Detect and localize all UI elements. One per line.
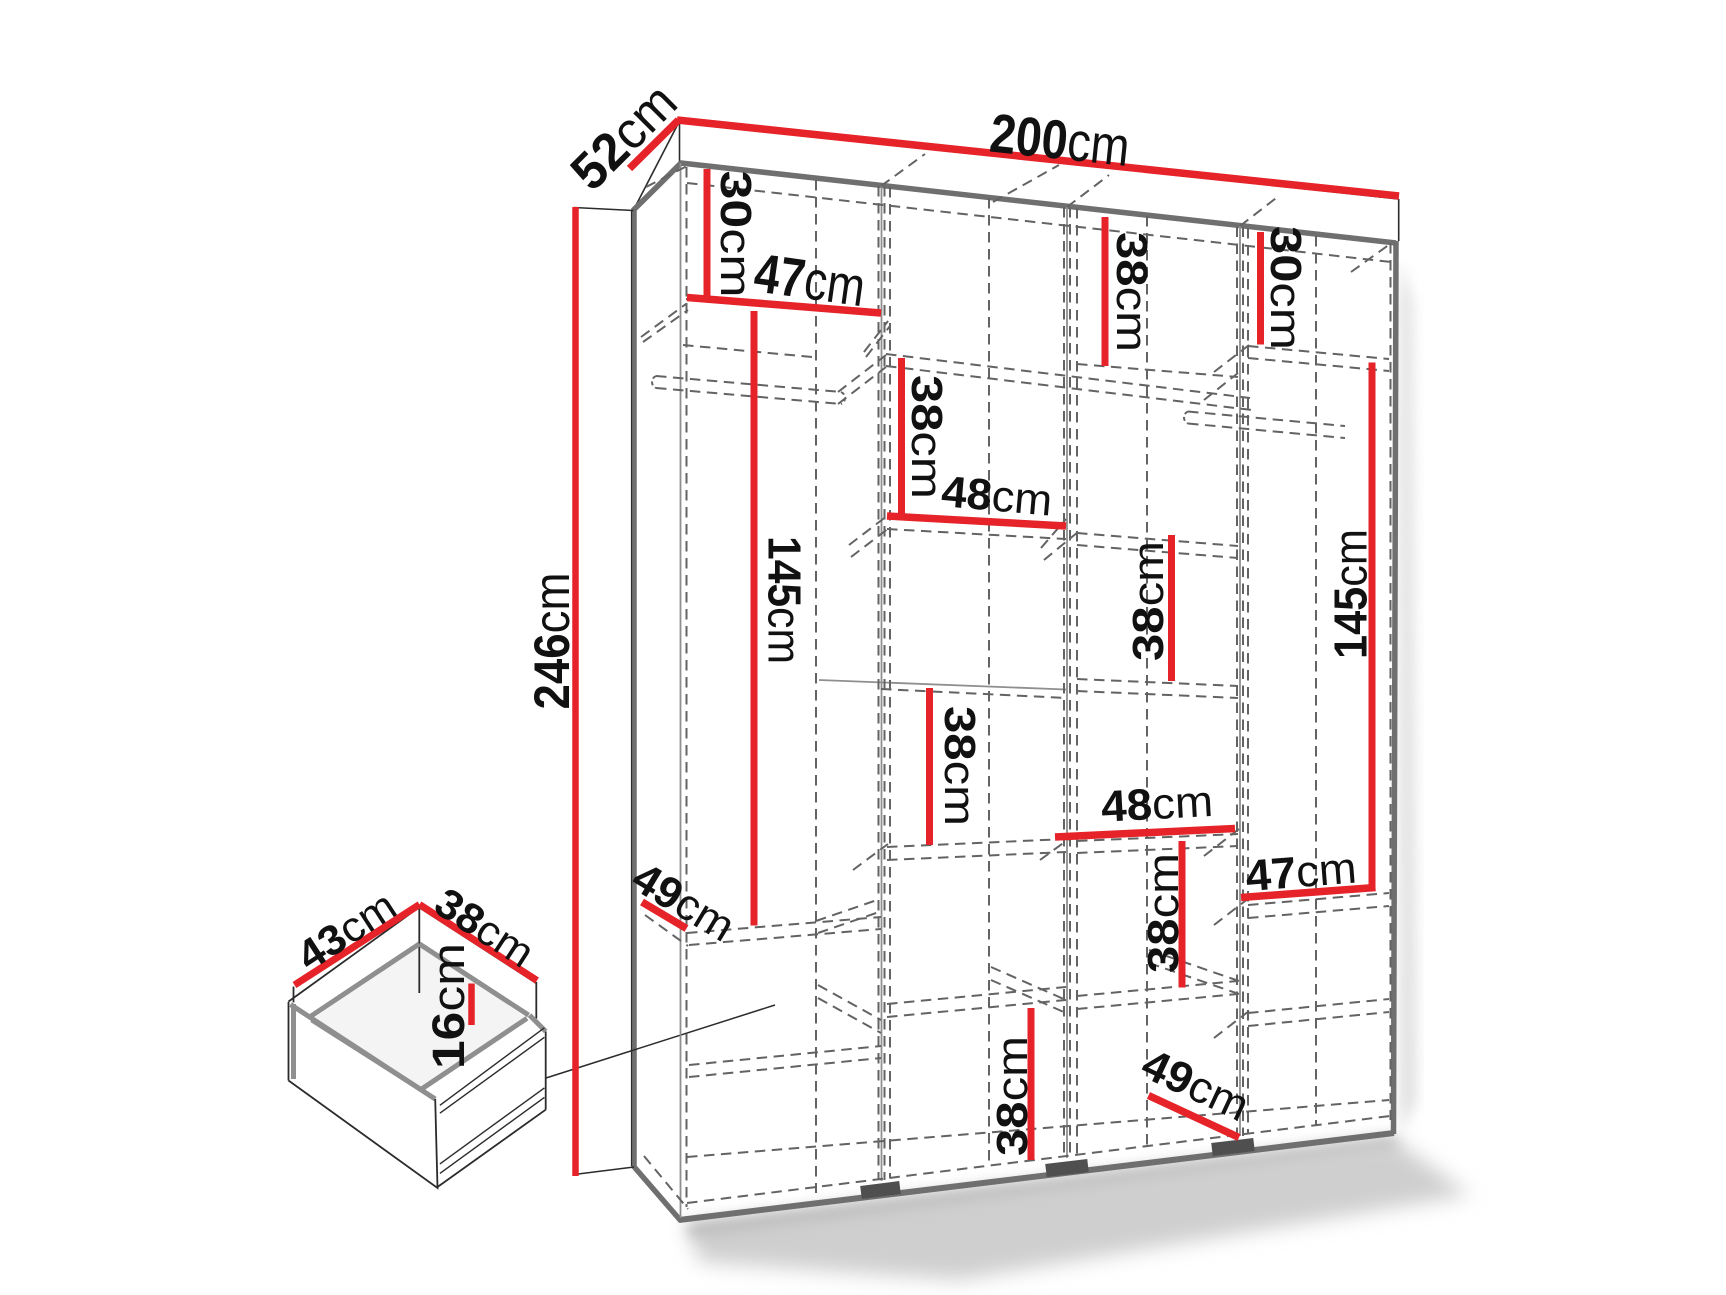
svg-text:47cm: 47cm: [1244, 844, 1359, 902]
svg-text:38cm: 38cm: [935, 706, 984, 826]
svg-text:16cm: 16cm: [423, 943, 474, 1069]
svg-text:145cm: 145cm: [758, 536, 810, 664]
svg-text:145cm: 145cm: [1325, 529, 1377, 659]
svg-text:30cm: 30cm: [711, 171, 760, 298]
svg-text:48cm: 48cm: [1100, 777, 1214, 832]
svg-text:30cm: 30cm: [1261, 226, 1310, 350]
svg-text:38cm: 38cm: [1124, 541, 1173, 661]
svg-text:38cm: 38cm: [1107, 232, 1156, 352]
svg-text:38cm: 38cm: [988, 1036, 1037, 1156]
svg-text:246cm: 246cm: [524, 573, 580, 710]
svg-text:38cm: 38cm: [1139, 853, 1188, 973]
svg-text:48cm: 48cm: [939, 467, 1054, 525]
